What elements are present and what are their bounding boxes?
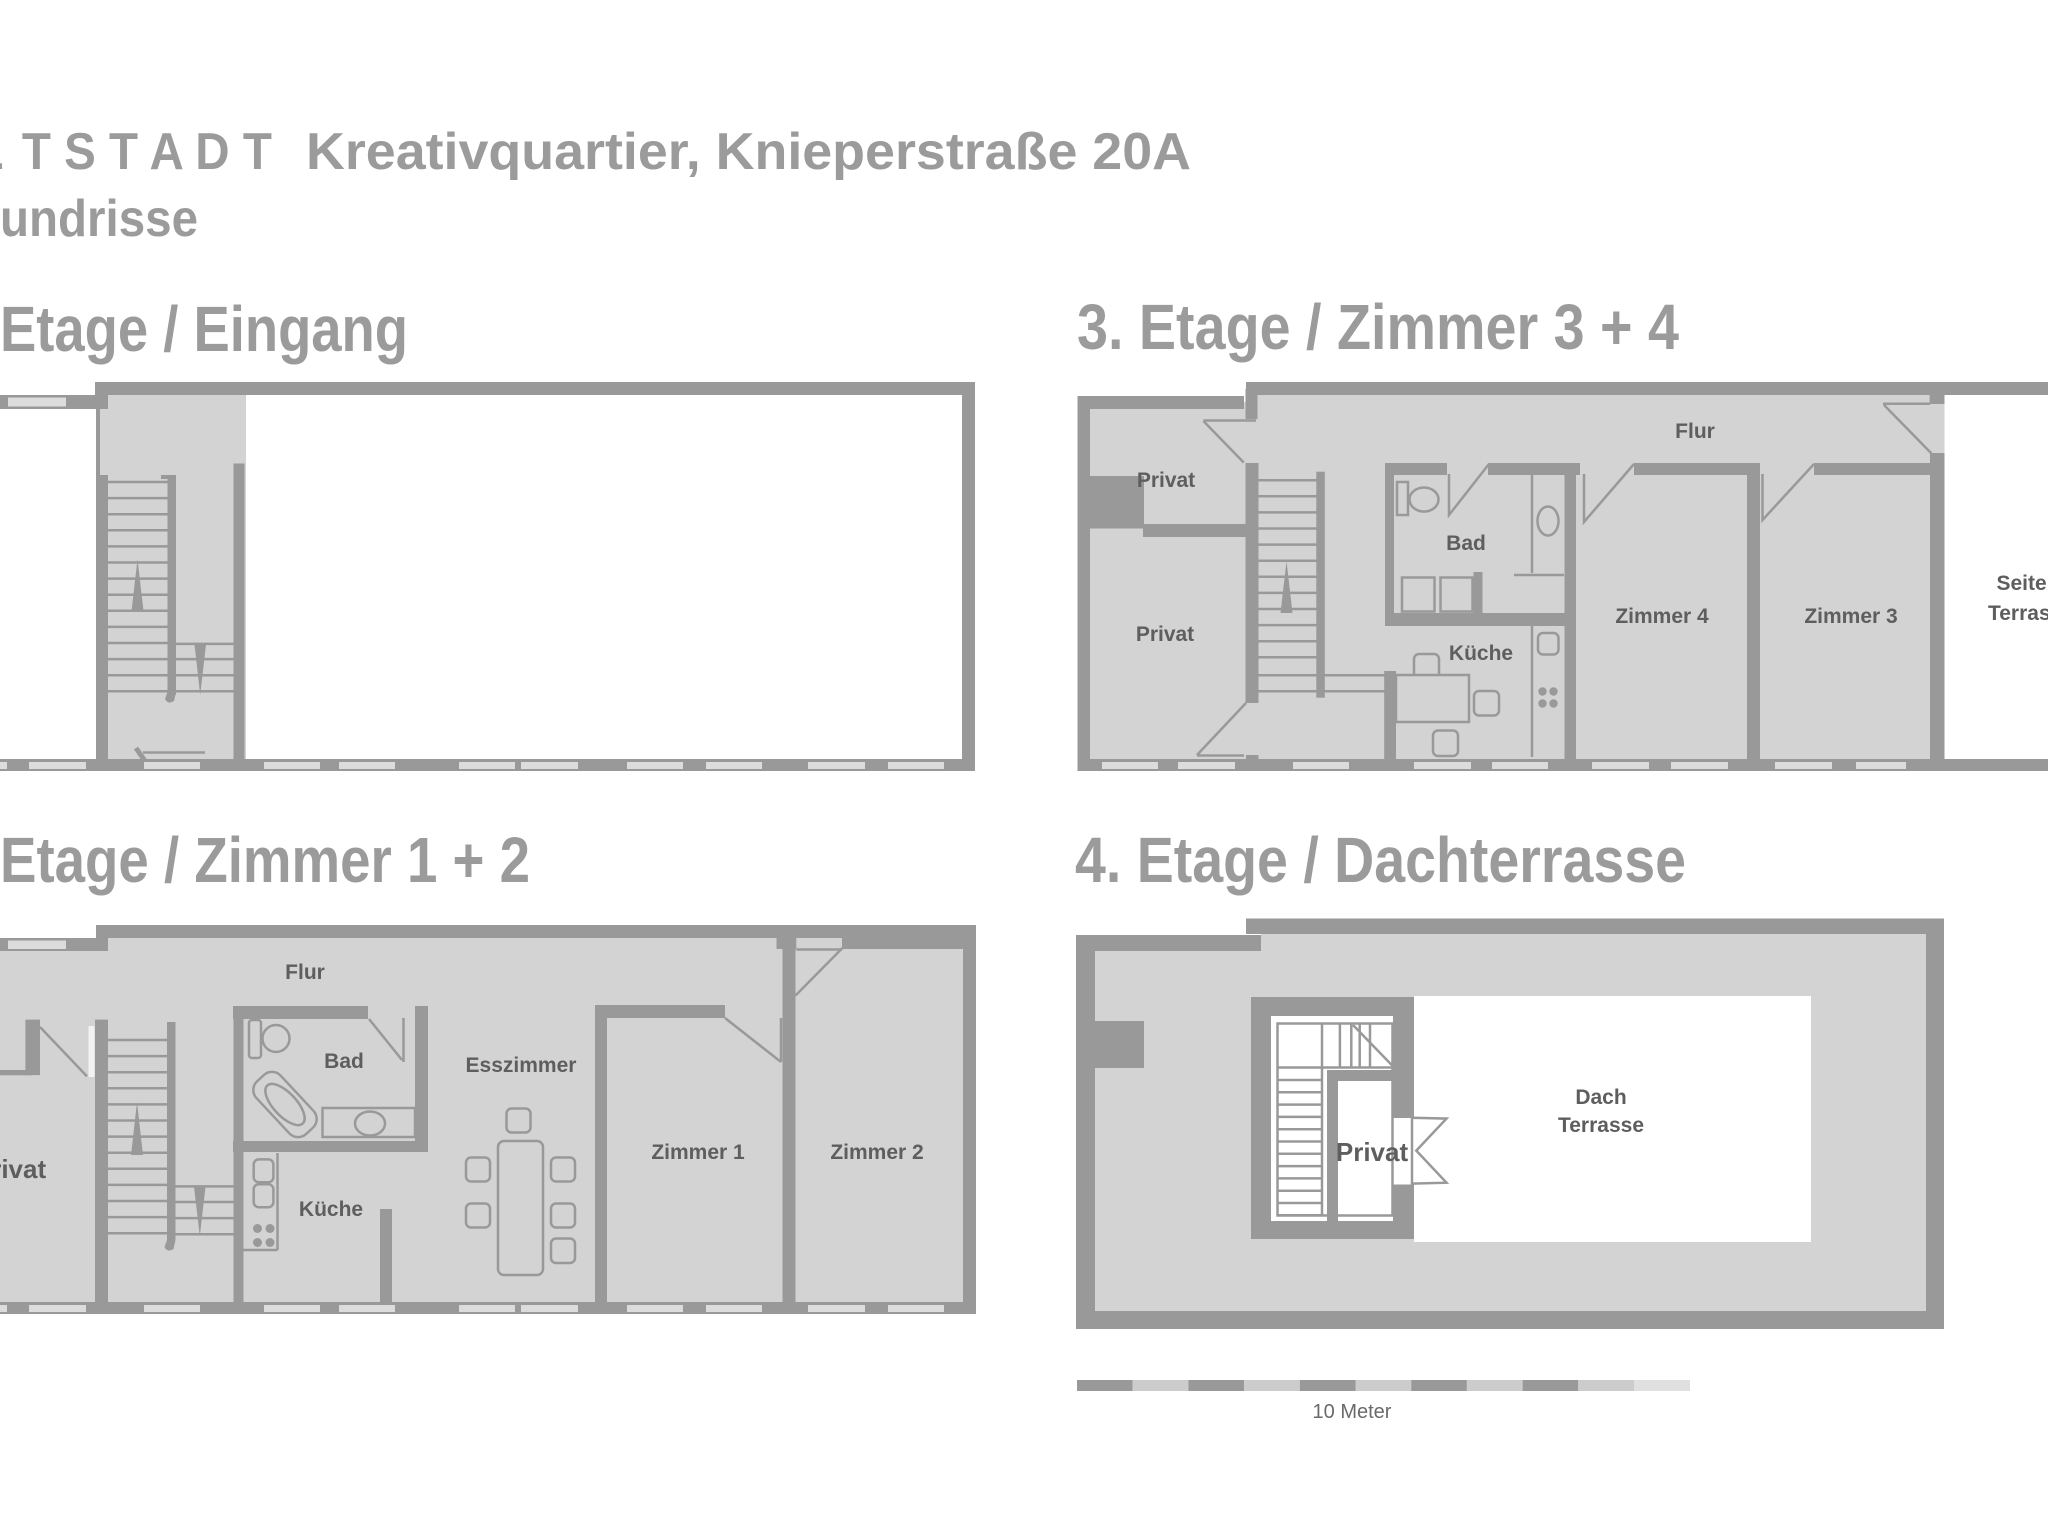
svg-text:Privat: Privat (0, 1154, 46, 1184)
svg-text:Grundrisse: Grundrisse (0, 190, 198, 248)
svg-text:Zimmer 3: Zimmer 3 (1804, 605, 1897, 628)
svg-text:10 Meter: 10 Meter (1313, 1401, 1392, 1423)
svg-text:Zimmer 4: Zimmer 4 (1615, 605, 1709, 628)
svg-text:Privat: Privat (1137, 469, 1195, 492)
svg-text:3. Etage / Zimmer 3 + 4: 3. Etage / Zimmer 3 + 4 (1077, 291, 1679, 363)
svg-text:Bad: Bad (324, 1050, 364, 1073)
svg-text:T S T A D T: T S T A D T (22, 123, 272, 181)
svg-text:Terrasse: Terrasse (1988, 602, 2048, 625)
svg-text:Dach: Dach (1575, 1086, 1626, 1109)
svg-text:Kreativquartier, Knieperstraße: Kreativquartier, Knieperstraße 20A (306, 123, 1191, 181)
svg-text:Küche: Küche (299, 1198, 363, 1221)
svg-text:Seiten: Seiten (1996, 572, 2048, 595)
svg-text:Zimmer 2: Zimmer 2 (830, 1141, 923, 1164)
svg-text:Küche: Küche (1449, 642, 1513, 665)
svg-text:Etage / Zimmer 1 + 2: Etage / Zimmer 1 + 2 (0, 824, 530, 896)
svg-text:L: L (0, 123, 4, 181)
svg-text:Privat: Privat (1336, 1137, 1409, 1167)
svg-text:Flur: Flur (1675, 420, 1715, 443)
svg-text:Zimmer 1: Zimmer 1 (651, 1141, 745, 1164)
svg-text:Flur: Flur (285, 961, 325, 984)
svg-text:Terrasse: Terrasse (1558, 1114, 1644, 1137)
svg-text:Esszimmer: Esszimmer (466, 1054, 577, 1077)
svg-text:Bad: Bad (1446, 532, 1486, 555)
svg-text:Privat: Privat (1136, 623, 1194, 646)
svg-text:4. Etage / Dachterrasse: 4. Etage / Dachterrasse (1075, 824, 1686, 896)
svg-text:Etage / Eingang: Etage / Eingang (0, 293, 408, 365)
